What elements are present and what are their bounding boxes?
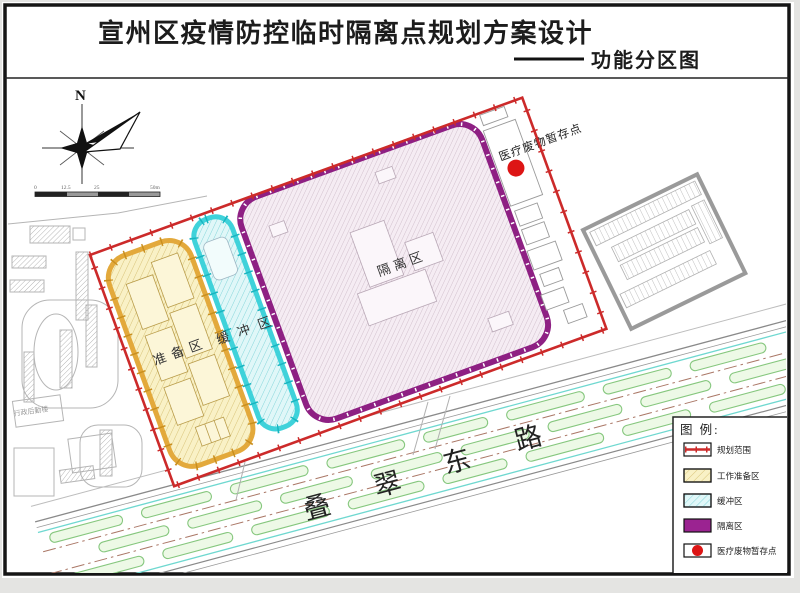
legend-item-planning-boundary: 规划范围: [684, 443, 751, 456]
legend-title: 图 例:: [680, 423, 720, 437]
campus-building: [30, 226, 70, 243]
parking-strip: [86, 305, 97, 367]
parking-strip: [12, 256, 46, 268]
legend-label: 规划范围: [717, 445, 751, 455]
legend-red-dot: [692, 545, 703, 556]
scale-label: 25: [94, 185, 100, 191]
scale-label: 50m: [150, 185, 161, 191]
site-plan-drawing: 宣州区疫情防控临时隔离点规划方案设计 功能分区图 行政后勤楼: [0, 0, 800, 593]
legend-label: 缓冲区: [717, 496, 743, 506]
page-title: 宣州区疫情防控临时隔离点规划方案设计: [98, 18, 593, 48]
page-subtitle: 功能分区图: [591, 48, 701, 72]
plan-sheet-photo: 宣州区疫情防控临时隔离点规划方案设计 功能分区图 行政后勤楼: [0, 0, 800, 593]
legend-label: 工作准备区: [717, 471, 760, 481]
north-label: N: [75, 88, 86, 104]
parking-strip: [100, 430, 112, 476]
parking-strip: [60, 330, 72, 388]
scale-label: 12.5: [61, 185, 71, 191]
legend: 图 例: 规划范围 工作准备区 缓冲区 隔离区 医疗废物暂存点: [673, 417, 787, 573]
legend-label: 医疗废物暂存点: [717, 546, 777, 556]
legend-item-medical-waste: 医疗废物暂存点: [684, 544, 777, 557]
legend-label: 隔离区: [717, 521, 743, 531]
legend-item-preparation: 工作准备区: [684, 469, 760, 482]
scale-label: 0: [34, 185, 37, 191]
parking-strip: [10, 280, 44, 292]
